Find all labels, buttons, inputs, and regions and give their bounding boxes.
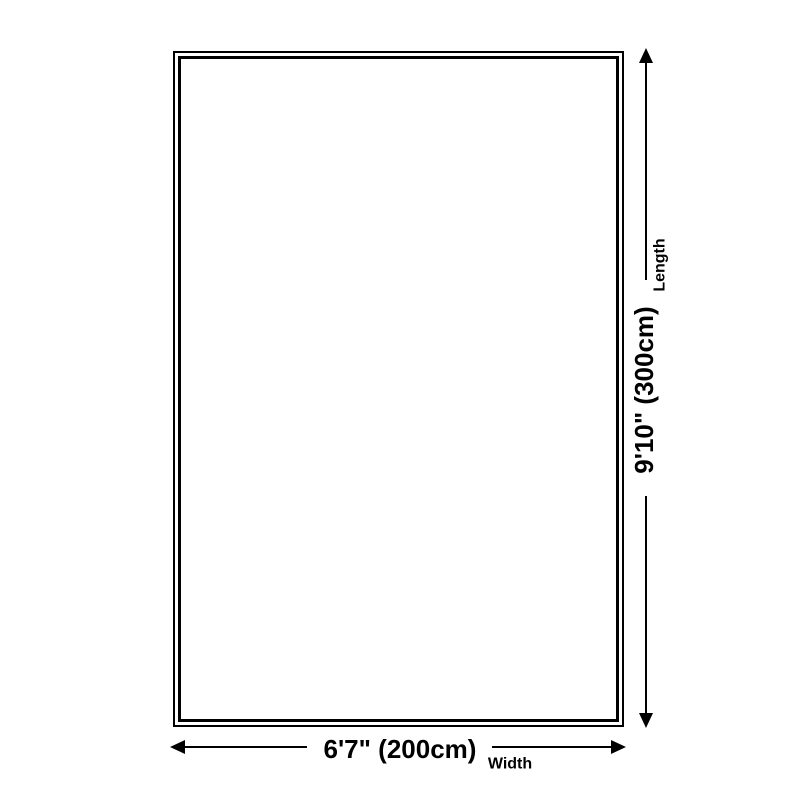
rug-size-diagram: 9'10" (300cm) Length 6'7" (200cm) Width	[0, 0, 800, 800]
length-axis-label: Length	[650, 238, 669, 291]
width-line-right-segment	[492, 746, 612, 748]
width-value-label: 6'7" (200cm)	[318, 733, 483, 766]
rug-rectangle-inner-border	[178, 56, 619, 722]
rug-rectangle	[173, 51, 624, 727]
length-line-lower-segment	[645, 496, 647, 714]
length-value-label: 9'10" (300cm)	[628, 300, 661, 479]
width-line-left-segment	[184, 746, 307, 748]
arrow-left-icon	[170, 740, 185, 754]
arrow-right-icon	[611, 740, 626, 754]
length-line-upper-segment	[645, 60, 647, 280]
arrow-down-icon	[639, 713, 653, 728]
width-axis-label: Width	[488, 754, 532, 773]
